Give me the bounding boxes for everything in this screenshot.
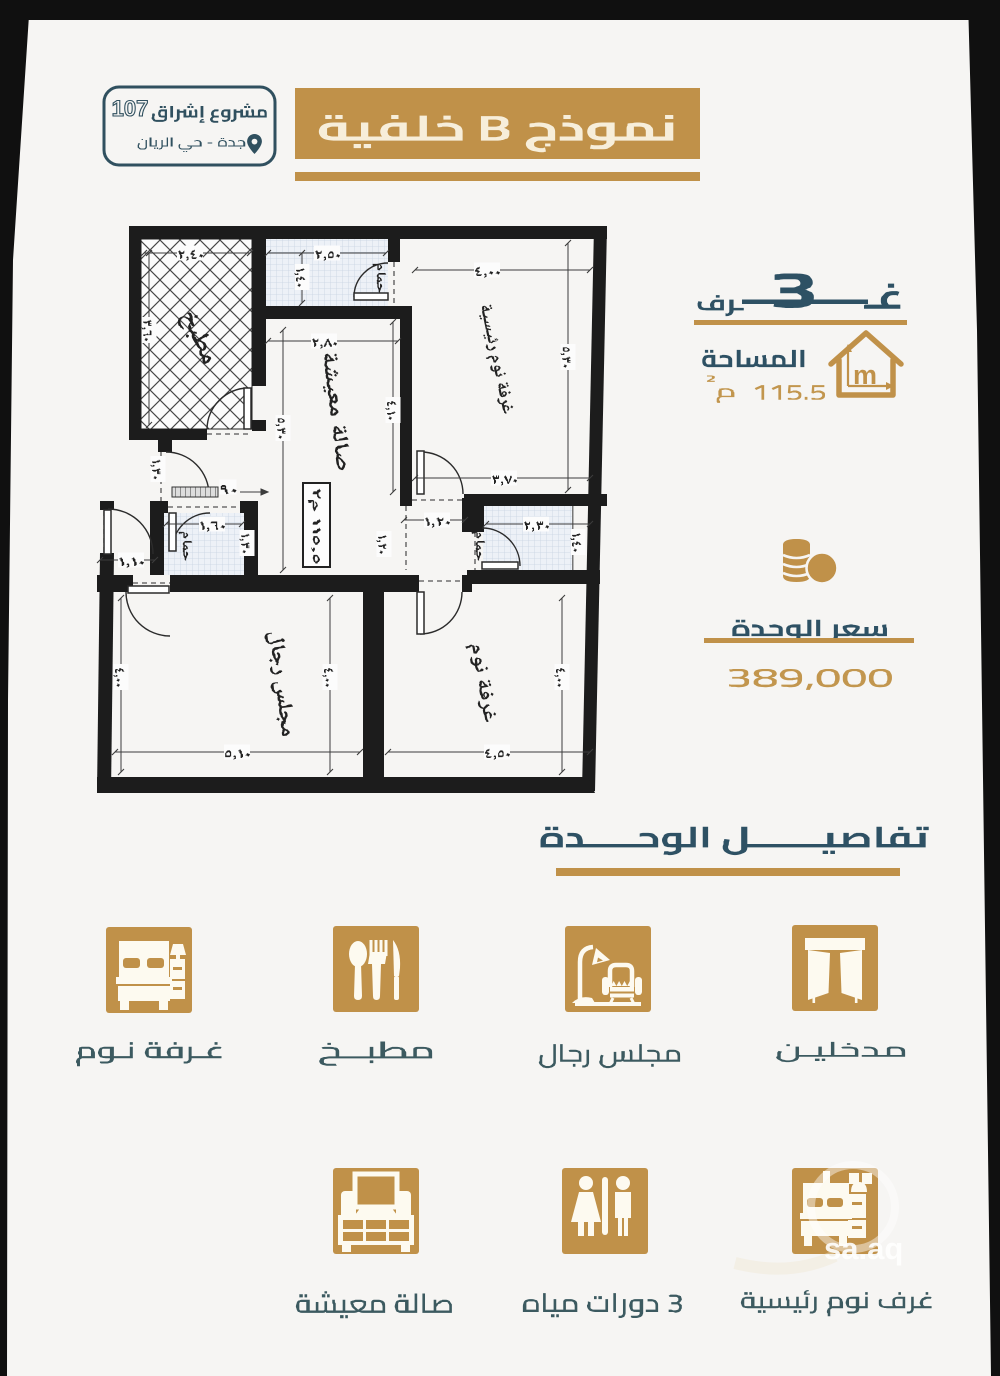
svg-text:sa.aq: sa.aq: [824, 1231, 903, 1266]
svg-text:m: m: [853, 360, 877, 390]
svg-text:107: 107: [112, 96, 149, 121]
